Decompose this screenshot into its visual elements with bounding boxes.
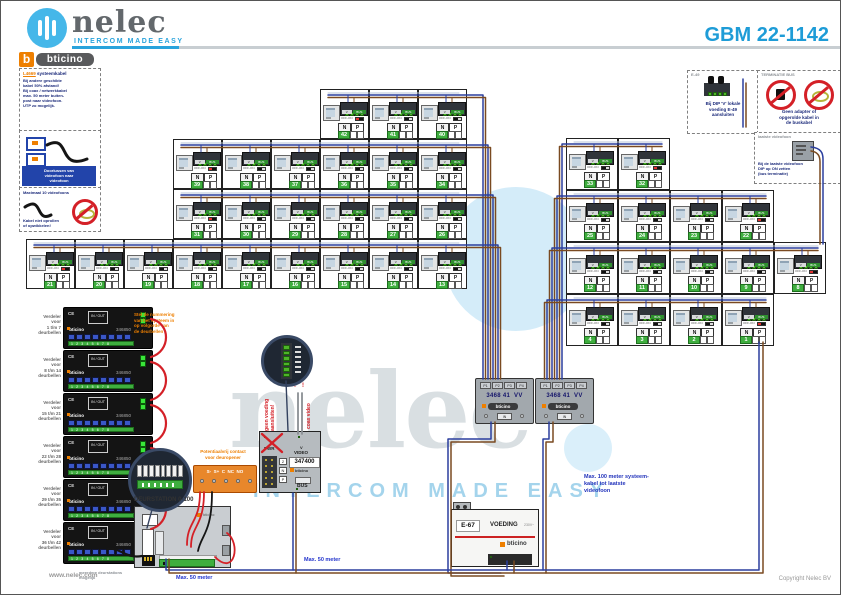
bus-terminal-block: VBUS bbox=[242, 252, 270, 266]
terminal-block-icon bbox=[704, 83, 730, 96]
videofoon-unit: VBUSOFF-ONNP32 bbox=[618, 138, 670, 190]
unit-address: 20 bbox=[93, 281, 105, 289]
terminal-label: N bbox=[279, 467, 287, 474]
bus-terminal-block: VBUS bbox=[586, 203, 614, 217]
psu-name: VOEDING bbox=[490, 522, 518, 529]
videofoon-unit: VBUSOFF-ONNP42 bbox=[320, 89, 369, 139]
bus-terminal-block: VBUS bbox=[389, 202, 417, 216]
bus-terminal-block: VBUS bbox=[291, 202, 319, 216]
videofoon-unit: VBUSOFF-ONNP33 bbox=[566, 138, 618, 190]
power-supply: E-67 VOEDING 230V~ bticino bbox=[451, 509, 539, 567]
warning-text-vertical: geen voeding aansluiten! bbox=[264, 381, 276, 431]
inset-laatste-videofoon: laatste videofoon Bij de laatste videofo… bbox=[754, 132, 841, 184]
unit-address: 18 bbox=[191, 281, 203, 289]
videofoon-monitor-icon bbox=[372, 205, 389, 221]
videofoon-monitor-icon bbox=[569, 310, 586, 326]
unit-address: 32 bbox=[636, 180, 648, 188]
dip-switch: OFF-ON bbox=[639, 321, 663, 327]
dip-switch: OFF-ON bbox=[743, 321, 767, 327]
bus-terminal-block: VBUS bbox=[742, 255, 770, 269]
diagram-code: GBM 22-1142 bbox=[661, 24, 829, 47]
wire-length-label: Max. 50 meter bbox=[304, 557, 340, 564]
header-divider-accent bbox=[72, 46, 179, 49]
videofoon-monitor-icon bbox=[621, 310, 638, 326]
videofoon-unit: VBUSOFF-ONNP18 bbox=[173, 239, 222, 289]
dip-switch: OFF-ON bbox=[341, 266, 365, 272]
unit-address: 35 bbox=[387, 181, 399, 189]
bus-length-note: Max. 100 meter systeem-kabel tot laatste… bbox=[584, 474, 649, 495]
dip-switch: OFF-ON bbox=[691, 269, 715, 275]
dip-switch: OFF-ON bbox=[439, 116, 463, 122]
unit-address: 27 bbox=[387, 231, 399, 239]
unit-address: 40 bbox=[436, 131, 448, 139]
videofoon-monitor-icon bbox=[673, 206, 690, 222]
videofoon-unit: VBUSOFF-ONNP20 bbox=[75, 239, 124, 289]
videofoon-monitor-icon bbox=[176, 205, 193, 221]
videofoon-monitor-icon bbox=[372, 255, 389, 271]
video-distributor: P1P2P3P43468 41 VVbticinoIN bbox=[535, 378, 594, 424]
videofoon-unit: VBUSOFF-ONNP24 bbox=[618, 190, 670, 242]
inset-e49: E-49 Bij DIP 'V' lokalevoeding E-49aansl… bbox=[687, 70, 759, 134]
videofoon-monitor-icon bbox=[569, 258, 586, 274]
videofoon-monitor-icon bbox=[372, 155, 389, 171]
videofoon-monitor-icon bbox=[673, 310, 690, 326]
no-coil-icon bbox=[804, 80, 834, 110]
videofoon-unit: VBUSOFF-ONNP2 bbox=[670, 294, 722, 346]
note-caption-bar: Doorlussen vanvideofoon naarvideofoon bbox=[22, 166, 96, 186]
unit-address: 16 bbox=[289, 281, 301, 289]
video-label: VIDEO bbox=[294, 450, 308, 456]
dip-switch: OFF-ON bbox=[691, 217, 715, 223]
bus-terminal-block: VBUS bbox=[340, 102, 368, 116]
unit-address: 34 bbox=[436, 181, 448, 189]
riser-module-label: Verdelervoor1 t/m 7deurbellen bbox=[15, 314, 61, 336]
bus-terminal-block: VBUS bbox=[638, 255, 666, 269]
dip-switch: OFF-ON bbox=[390, 266, 414, 272]
bus-terminal-block: VBUS bbox=[794, 255, 822, 269]
unit-address: 19 bbox=[142, 281, 154, 289]
videofoon-unit: VBUSOFF-ONNP9 bbox=[722, 242, 774, 294]
dip-switch: OFF-ON bbox=[390, 116, 414, 122]
videofoon-monitor-icon bbox=[274, 255, 291, 271]
riser-module: CEIN / OUT bticino34685012345678 bbox=[63, 393, 153, 435]
unit-address: 11 bbox=[636, 284, 648, 292]
videofoon-monitor-icon bbox=[274, 205, 291, 221]
video-distributor: P1P2P3P43468 41 VVbticinoIN bbox=[475, 378, 534, 424]
dip-switch: OFF-ON bbox=[639, 165, 663, 171]
videofoon-monitor-icon bbox=[569, 154, 586, 170]
watermark-circle-small bbox=[564, 424, 612, 472]
videofoon-monitor-icon bbox=[274, 155, 291, 171]
videofoon-unit: VBUSOFF-ONNP17 bbox=[222, 239, 271, 289]
dip-switch: OFF-ON bbox=[292, 216, 316, 222]
terminal-strip bbox=[262, 456, 277, 488]
dip-switch: OFF-ON bbox=[243, 166, 267, 172]
riser-module-label: Verdelervoor15 t/m 21deurbellen bbox=[15, 400, 61, 422]
videofoon-unit: VBUSOFF-ONNP3 bbox=[618, 294, 670, 346]
videofoon-unit: VBUSOFF-ONNP28 bbox=[320, 189, 369, 239]
videofoon-monitor-icon bbox=[421, 205, 438, 221]
bus-terminal-block: VBUS bbox=[242, 202, 270, 216]
psu-terminals bbox=[488, 554, 532, 565]
bus-terminal-block: VBUS bbox=[193, 152, 221, 166]
videofoon-monitor-icon bbox=[421, 255, 438, 271]
note-systeemkabel: L4669 systeemkabel Bij andere geschiktek… bbox=[19, 68, 101, 132]
videofoon-monitor-icon bbox=[127, 255, 144, 271]
videofoon-monitor-icon bbox=[323, 155, 340, 171]
videofoon-unit: VBUSOFF-ONNP23 bbox=[670, 190, 722, 242]
unit-address: 38 bbox=[240, 181, 252, 189]
plug-icon bbox=[708, 76, 714, 84]
videofoon-unit: VBUSOFF-ONNP26 bbox=[418, 189, 467, 239]
dip-switch: OFF-ON bbox=[743, 269, 767, 275]
videofoon-unit: VBUSOFF-ONNP37 bbox=[271, 139, 320, 189]
relay-caption: Potentiaalvrij contactvoor deuropener bbox=[187, 449, 259, 460]
bus-terminal-block: VBUS bbox=[389, 252, 417, 266]
warning-text-vertical: coax video bbox=[306, 383, 312, 429]
inset-title: TERMINATIE BUS bbox=[758, 71, 840, 77]
pwr-label: PWR bbox=[264, 446, 275, 452]
riser-module-label: Verdelervoor29 t/m 35deurbellen bbox=[15, 486, 61, 508]
note-title-accent: L4669 bbox=[23, 71, 36, 76]
connector-icon bbox=[26, 137, 46, 151]
bus-terminal-block: VBUS bbox=[340, 252, 368, 266]
connector-icon bbox=[26, 153, 46, 167]
videofoon-rear-icon bbox=[792, 141, 814, 161]
videofoon-monitor-icon bbox=[421, 155, 438, 171]
videofoon-monitor-icon bbox=[673, 258, 690, 274]
dip-switch: OFF-ON bbox=[639, 269, 663, 275]
unit-address: 33 bbox=[584, 180, 596, 188]
note-title: systeemkabel bbox=[36, 71, 67, 76]
inset-title: laatste videofoon bbox=[755, 133, 840, 139]
dip-switch: OFF-ON bbox=[587, 165, 611, 171]
note-doorlussen: Doorlussen vanvideofoon naarvideofoon bbox=[19, 130, 101, 189]
bus-terminal-block: VBUS bbox=[193, 202, 221, 216]
unit-address: 17 bbox=[240, 281, 252, 289]
door-station-caption: DEURSTATION 0-100 bbox=[134, 497, 193, 504]
videofoon-monitor-icon bbox=[78, 255, 95, 271]
videofoon-unit: VBUSOFF-ONNP16 bbox=[271, 239, 320, 289]
unit-address: 41 bbox=[387, 131, 399, 139]
videofoon-unit: VBUSOFF-ONNP11 bbox=[618, 242, 670, 294]
videofoon-unit: VBUSOFF-ONNP27 bbox=[369, 189, 418, 239]
bus-terminal-block: VBUS bbox=[95, 252, 123, 266]
nelec-logo-tagline: INTERCOM MADE EASY bbox=[74, 38, 184, 45]
videofoon-monitor-icon bbox=[225, 155, 242, 171]
bus-terminal-block: VBUS bbox=[291, 252, 319, 266]
warning-mark: ! bbox=[302, 383, 304, 390]
bticino-dot bbox=[290, 468, 294, 472]
footer-copyright: Copyright Nelec BV bbox=[741, 576, 831, 583]
videofoon-monitor-icon bbox=[372, 105, 389, 121]
unit-address: 39 bbox=[191, 181, 203, 189]
videofoon-monitor-icon bbox=[777, 258, 794, 274]
dip-switch: OFF-ON bbox=[795, 269, 819, 275]
bus-terminal bbox=[296, 488, 308, 496]
plug-icon bbox=[718, 76, 724, 84]
dip-switch: OFF-ON bbox=[439, 166, 463, 172]
note-max-videofoons: Maximaal 10 videofoons Kabel niet oproll… bbox=[19, 187, 101, 232]
videofoon-monitor-icon bbox=[29, 255, 46, 271]
videofoon-unit: VBUSOFF-ONNP14 bbox=[369, 239, 418, 289]
videofoon-unit: VBUSOFF-ONNP4 bbox=[566, 294, 618, 346]
bus-terminal-block: VBUS bbox=[340, 152, 368, 166]
videofoon-unit: VBUSOFF-ONNP8 bbox=[774, 242, 826, 294]
riser-module: CEIN / OUT bticino34685012345678 bbox=[63, 350, 153, 392]
unit-address: 22 bbox=[740, 232, 752, 240]
unit-address: 3 bbox=[636, 336, 648, 344]
door-station: bticino bbox=[134, 506, 231, 568]
inset-caption: Bij DIP 'V' lokalevoeding E-49aansluiten bbox=[688, 101, 758, 118]
unit-address: 37 bbox=[289, 181, 301, 189]
bus-terminal-block: VBUS bbox=[291, 152, 319, 166]
wire-length-label: Max. 50 meter bbox=[176, 575, 212, 582]
unit-address: 9 bbox=[740, 284, 752, 292]
videofoon-unit: VBUSOFF-ONNP39 bbox=[173, 139, 222, 189]
terminal-row bbox=[159, 559, 215, 567]
unit-address: 1 bbox=[740, 336, 752, 344]
terminal-label: P bbox=[279, 476, 287, 483]
dip-switch: OFF-ON bbox=[145, 266, 169, 272]
bus-terminal-block: VBUS bbox=[193, 252, 221, 266]
inset-caption: Geen adapter ofopgerolde kabel inde busk… bbox=[758, 109, 840, 126]
bus-terminal-block: VBUS bbox=[638, 203, 666, 217]
bus-terminal-block: VBUS bbox=[586, 255, 614, 269]
pwr-terminal bbox=[264, 436, 276, 444]
bus-terminal-block: VBUS bbox=[638, 151, 666, 165]
unit-address: 26 bbox=[436, 231, 448, 239]
videofoon-monitor-icon bbox=[225, 205, 242, 221]
videofoon-monitor-icon bbox=[621, 206, 638, 222]
riser-module-label: Verdelervoor8 t/m 14deurbellen bbox=[15, 357, 61, 379]
bus-terminal-block: VBUS bbox=[438, 202, 466, 216]
unit-address: 31 bbox=[191, 231, 203, 239]
bus-terminal-block: VBUS bbox=[438, 252, 466, 266]
videofoon-unit: VBUSOFF-ONNP36 bbox=[320, 139, 369, 189]
videofoon-unit: VBUSOFF-ONNP34 bbox=[418, 139, 467, 189]
note-caption: Kabel niet oprollenof opwikkelen! bbox=[23, 218, 59, 228]
videofoon-unit: VBUSOFF-ONNP15 bbox=[320, 239, 369, 289]
bus-terminal-block: VBUS bbox=[438, 102, 466, 116]
dip-switch: OFF-ON bbox=[390, 166, 414, 172]
dip-switch: OFF-ON bbox=[743, 217, 767, 223]
inset-terminatie: TERMINATIE BUS Geen adapter ofopgerolde … bbox=[757, 70, 841, 134]
dip-switch: OFF-ON bbox=[243, 266, 267, 272]
unit-address: 4 bbox=[584, 336, 596, 344]
footer-url: www.nelec.com bbox=[49, 572, 98, 580]
dip-switch: OFF-ON bbox=[243, 216, 267, 222]
unit-address: 30 bbox=[240, 231, 252, 239]
bus-terminal-block: VBUS bbox=[144, 252, 172, 266]
videofoon-monitor-icon bbox=[225, 255, 242, 271]
videofoon-unit: VBUSOFF-ONNP21 bbox=[26, 239, 75, 289]
videofoon-unit: VBUSOFF-ONNP29 bbox=[271, 189, 320, 239]
unit-address: 36 bbox=[338, 181, 350, 189]
bus-terminal-block: VBUS bbox=[586, 151, 614, 165]
videofoon-monitor-icon bbox=[621, 258, 638, 274]
dip-switch: OFF-ON bbox=[292, 166, 316, 172]
dip-switch: OFF-ON bbox=[194, 266, 218, 272]
unit-address: 23 bbox=[688, 232, 700, 240]
videofoon-monitor-icon bbox=[176, 155, 193, 171]
unit-address: 42 bbox=[338, 131, 350, 139]
note-body: Bij andere geschiktekabel 50% afstand!Bi… bbox=[20, 77, 100, 108]
bus-terminal-block: VBUS bbox=[586, 307, 614, 321]
unit-address: 29 bbox=[289, 231, 301, 239]
nelec-logo-icon bbox=[27, 8, 67, 48]
videofoon-unit: VBUSOFF-ONNP22 bbox=[722, 190, 774, 242]
dip-switch: OFF-ON bbox=[691, 321, 715, 327]
psu-code: E-67 bbox=[456, 520, 480, 532]
unit-address: 15 bbox=[338, 281, 350, 289]
relay-labels: S- S+ C NC NO bbox=[194, 469, 256, 475]
videofoon-unit: VBUSOFF-ONNP35 bbox=[369, 139, 418, 189]
nelec-logo-text: nelec bbox=[72, 5, 167, 40]
dip-switch: OFF-ON bbox=[439, 266, 463, 272]
videofoon-monitor-icon bbox=[323, 205, 340, 221]
dip-switch: OFF-ON bbox=[439, 216, 463, 222]
bus-terminal-block: VBUS bbox=[742, 203, 770, 217]
unit-address: 24 bbox=[636, 232, 648, 240]
no-coil-icon bbox=[72, 199, 98, 225]
dip-switch: OFF-ON bbox=[639, 217, 663, 223]
unit-address: 28 bbox=[338, 231, 350, 239]
videofoon-unit: VBUSOFF-ONNP40 bbox=[418, 89, 467, 139]
videofoon-monitor-icon bbox=[621, 154, 638, 170]
videofoon-unit: VBUSOFF-ONNP19 bbox=[124, 239, 173, 289]
dip-switch: OFF-ON bbox=[390, 216, 414, 222]
unit-address: 12 bbox=[584, 284, 596, 292]
dip-switch: OFF-ON bbox=[341, 216, 365, 222]
videofoon-monitor-icon bbox=[323, 105, 340, 121]
bus-terminal-block: VBUS bbox=[690, 203, 718, 217]
bus-terminal-block: VBUS bbox=[690, 307, 718, 321]
video-terminal bbox=[298, 436, 310, 444]
bus-terminal-block: VBUS bbox=[389, 152, 417, 166]
videofoon-monitor-icon bbox=[421, 105, 438, 121]
videofoon-unit: VBUSOFF-ONNP13 bbox=[418, 239, 467, 289]
bus-terminal-block: VBUS bbox=[340, 202, 368, 216]
wiring-diagram-page: nelec INTERCOM MADE EASY nelec INTERCOM … bbox=[0, 0, 841, 595]
unit-address: 21 bbox=[44, 281, 56, 289]
unit-address: 2 bbox=[688, 336, 700, 344]
videofoon-monitor-icon bbox=[725, 258, 742, 274]
videofoon-unit: VBUSOFF-ONNP10 bbox=[670, 242, 722, 294]
dip-switch: OFF-ON bbox=[47, 266, 71, 272]
terminal-detail-inset bbox=[261, 335, 313, 387]
videofoon-unit: VBUSOFF-ONNP30 bbox=[222, 189, 271, 239]
bus-terminal-block: VBUS bbox=[389, 102, 417, 116]
unit-address: 8 bbox=[792, 284, 804, 292]
rj45-jack bbox=[142, 555, 155, 566]
bus-terminal-block: VBUS bbox=[46, 252, 74, 266]
riser-module-label: Verdelervoor36 t/m 42deurbellen bbox=[15, 529, 61, 551]
videofoon-monitor-icon bbox=[323, 255, 340, 271]
videofoon-unit: VBUSOFF-ONNP41 bbox=[369, 89, 418, 139]
videofoon-unit: VBUSOFF-ONNP38 bbox=[222, 139, 271, 189]
dip-switch: OFF-ON bbox=[194, 216, 218, 222]
bticino-logo-text: bticino bbox=[36, 53, 94, 66]
orange-note: Stel de nummeringvan het systeem inop vo… bbox=[134, 312, 192, 334]
dip-switch: OFF-ON bbox=[341, 116, 365, 122]
psu-brand: bticino bbox=[507, 541, 527, 548]
article-label: 347400 bbox=[289, 457, 320, 468]
videofoon-unit: VBUSOFF-ONNP25 bbox=[566, 190, 618, 242]
bus-terminal-block: VBUS bbox=[242, 152, 270, 166]
door-panel-347400: PWR V VIDEO 2 N P 347400 bticino BUS bbox=[259, 431, 321, 493]
unit-address: 10 bbox=[688, 284, 700, 292]
dip-switch: OFF-ON bbox=[587, 217, 611, 223]
unit-address: 14 bbox=[387, 281, 399, 289]
dip-switch: OFF-ON bbox=[96, 266, 120, 272]
terminal-label: 2 bbox=[279, 458, 287, 465]
unit-address: 13 bbox=[436, 281, 448, 289]
videofoon-unit: VBUSOFF-ONNP12 bbox=[566, 242, 618, 294]
videofoon-monitor-icon bbox=[725, 310, 742, 326]
note-title: Maximaal 10 videofoons bbox=[20, 188, 100, 195]
dip-switch: OFF-ON bbox=[292, 266, 316, 272]
bus-terminal-block: VBUS bbox=[438, 152, 466, 166]
dip-switch: OFF-ON bbox=[194, 166, 218, 172]
dip-switch: OFF-ON bbox=[587, 269, 611, 275]
riser-module-label: Verdelervoor22 t/m 28deurbellen bbox=[15, 443, 61, 465]
bus-terminal-block: VBUS bbox=[690, 255, 718, 269]
bus-terminal-block: VBUS bbox=[742, 307, 770, 321]
videofoon-monitor-icon bbox=[176, 255, 193, 271]
videofoon-unit: VBUSOFF-ONNP31 bbox=[173, 189, 222, 239]
videofoon-unit: VBUSOFF-ONNP1 bbox=[722, 294, 774, 346]
psu-mains: 230V~ bbox=[524, 523, 534, 527]
relay-terminal-block: S- S+ C NC NO bbox=[193, 465, 257, 493]
bticino-mini-logo: bticino bbox=[295, 468, 308, 473]
no-adapter-icon bbox=[766, 80, 796, 110]
dip-switch: OFF-ON bbox=[341, 166, 365, 172]
unit-address: 25 bbox=[584, 232, 596, 240]
dip-switch: OFF-ON bbox=[587, 321, 611, 327]
videofoon-monitor-icon bbox=[569, 206, 586, 222]
bus-terminal-block: VBUS bbox=[638, 307, 666, 321]
bticino-logo-icon: b bbox=[19, 52, 34, 67]
inset-caption: Bij de laatste videofoonDIP op ON zetten… bbox=[758, 161, 803, 176]
videofoon-monitor-icon bbox=[725, 206, 742, 222]
